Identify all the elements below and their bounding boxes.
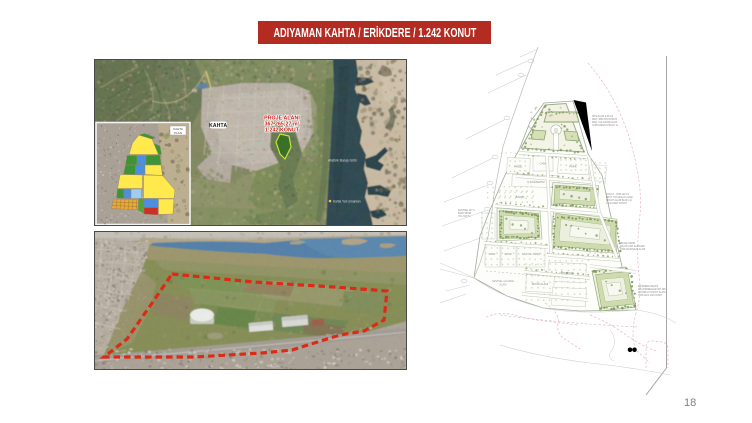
svg-text:MAH. 3800 KİŞİ KONUT: MAH. 3800 KİŞİ KONUT (592, 118, 618, 121)
svg-text:PARK: PARK (569, 165, 577, 169)
svg-text:KREŞ: KREŞ (514, 165, 522, 169)
svg-text:KAHTA: KAHTA (209, 123, 227, 129)
svg-text:BRÜT YOĞUNLUK ALANI: BRÜT YOĞUNLUK ALANI (606, 196, 633, 199)
svg-text:Atatürk Barajı Gölü: Atatürk Barajı Gölü (328, 159, 357, 163)
svg-text:BAKIM: BAKIM (516, 195, 525, 199)
svg-text:SPOR ALANI: SPOR ALANI (532, 282, 549, 286)
svg-text:ALANI: ALANI (500, 283, 507, 286)
svg-text:KALAN YAPI ALANLARI: KALAN YAPI ALANLARI (620, 245, 645, 248)
svg-text:YAPILANMA KOŞULU: E: YAPILANMA KOŞULU: E (592, 124, 618, 127)
svg-text:PROJE SINIRI: PROJE SINIRI (620, 243, 635, 245)
svg-text:1.242 ADET KONUT: 1.242 ADET KONUT (606, 202, 628, 205)
svg-text:TOPLAM İNŞAAT ALANI: TOPLAM İNŞAAT ALANI (620, 248, 646, 251)
svg-text:KONUT ALANI BLOK m2: KONUT ALANI BLOK m2 (606, 199, 632, 202)
svg-text:1.242 KONUT: 1.242 KONUT (265, 128, 300, 134)
svg-text:SİTE ALANI 3,65 m2: SİTE ALANI 3,65 m2 (592, 115, 614, 118)
svg-text:367/265-27 KONUT ALANI: 367/265-27 KONUT ALANI (638, 291, 666, 294)
svg-text:İMAR SINIRI: İMAR SINIRI (458, 212, 472, 215)
svg-text:Kahta Yat Limanları: Kahta Yat Limanları (333, 200, 361, 204)
svg-text:KENTSEL SİT A.: KENTSEL SİT A. (458, 209, 476, 212)
svg-text:KONUT - TOPLAM m2: KONUT - TOPLAM m2 (606, 193, 630, 196)
svg-text:ERİKDERE MEVKİİ: ERİKDERE MEVKİİ (638, 285, 659, 288)
svg-text:PLAN: PLAN (174, 131, 182, 135)
svg-text:YOL HATTI: YOL HATTI (458, 215, 470, 218)
svg-text:TOPLAM 1.242 KONUT: TOPLAM 1.242 KONUT (638, 294, 663, 297)
svg-text:MAH. KULLANIM ALANI: MAH. KULLANIM ALANI (592, 121, 617, 124)
svg-text:ADA PARSELLER 367.265: ADA PARSELLER 367.265 (638, 288, 666, 291)
